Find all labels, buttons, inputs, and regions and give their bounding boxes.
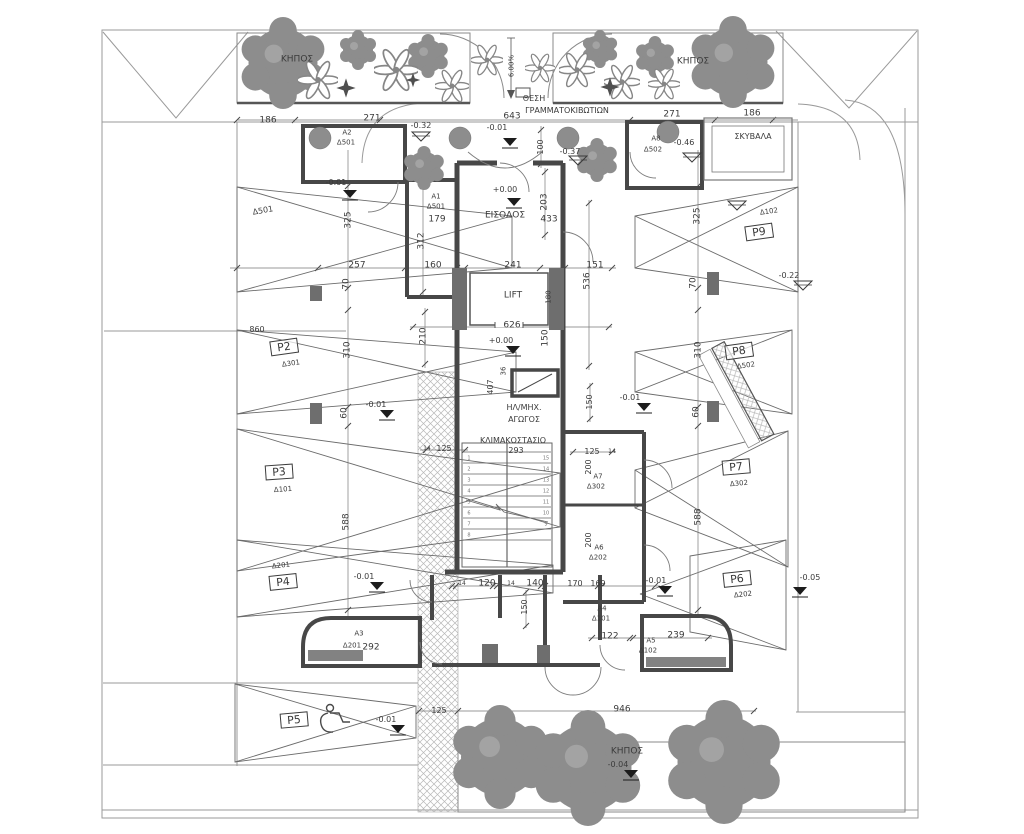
- lift-shaft: [470, 273, 548, 328]
- refuse-room: [704, 118, 792, 180]
- ramp-bar: [699, 342, 774, 448]
- dark-plant-icon: [336, 78, 355, 97]
- door-arcs: [368, 152, 672, 695]
- floor-plan-canvas: ΚΗΠΟΣΚΗΠΟΣ6.00%ΘΕΣΗΓΡΑΜΜΑΤΟΚΙΒΩΤΙΩΝ64318…: [0, 0, 1024, 834]
- driveway-hatch: [418, 372, 458, 812]
- mailbox-icon: [516, 88, 530, 97]
- floor-plan-drawing: [0, 0, 1024, 834]
- planting: [242, 16, 780, 826]
- level-marker-icon: [502, 138, 518, 148]
- slope-arrow-icon: [507, 38, 515, 99]
- level-flag-icon: [412, 132, 430, 141]
